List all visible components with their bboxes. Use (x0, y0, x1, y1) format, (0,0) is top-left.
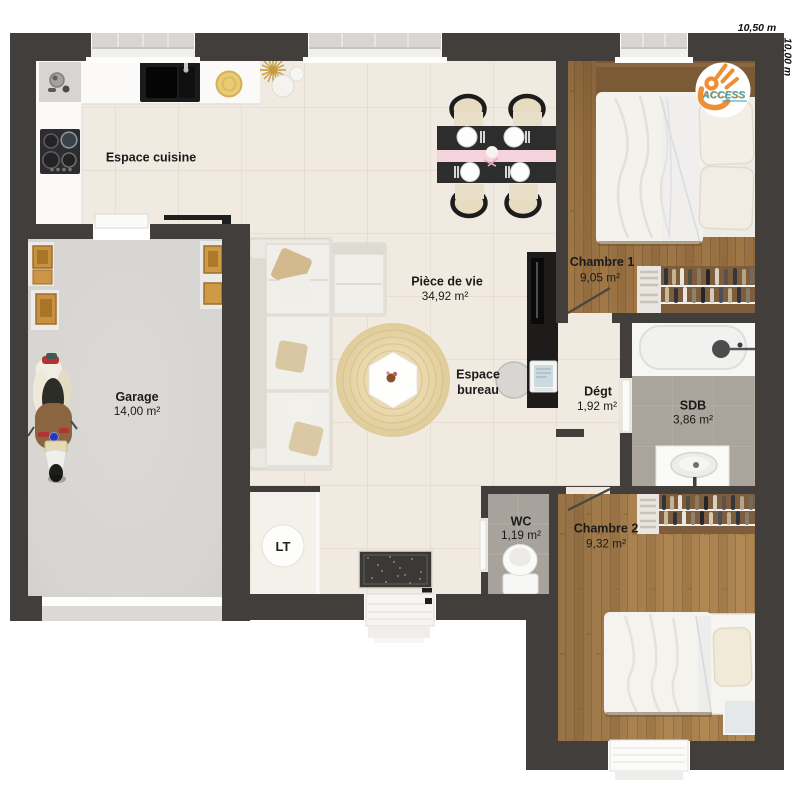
svg-text:Chambre 1: Chambre 1 (570, 255, 635, 269)
svg-text:SDB: SDB (680, 399, 706, 413)
svg-text:1,19 m²: 1,19 m² (501, 528, 541, 542)
svg-text:34,92 m²: 34,92 m² (422, 289, 469, 303)
svg-text:LT: LT (276, 539, 291, 554)
svg-text:14,00 m²: 14,00 m² (114, 404, 161, 418)
svg-text:Pièce de vie: Pièce de vie (411, 275, 483, 289)
svg-text:ACCESS: ACCESS (702, 90, 746, 101)
svg-text:1,92 m²: 1,92 m² (577, 399, 617, 413)
svg-text:bureau: bureau (457, 383, 499, 397)
svg-text:9,05 m²: 9,05 m² (580, 271, 620, 285)
svg-text:9,32 m²: 9,32 m² (586, 537, 626, 551)
svg-text:Dégt: Dégt (584, 385, 613, 399)
svg-text:Chambre 2: Chambre 2 (574, 522, 639, 536)
svg-text:Espace cuisine: Espace cuisine (106, 151, 196, 165)
svg-text:3,86 m²: 3,86 m² (673, 413, 713, 427)
svg-text:10,00 m: 10,00 m (782, 38, 794, 77)
svg-text:WC: WC (511, 515, 532, 529)
svg-text:10,50 m: 10,50 m (738, 22, 777, 34)
svg-text:Espace: Espace (456, 368, 500, 382)
svg-text:Garage: Garage (115, 390, 158, 404)
